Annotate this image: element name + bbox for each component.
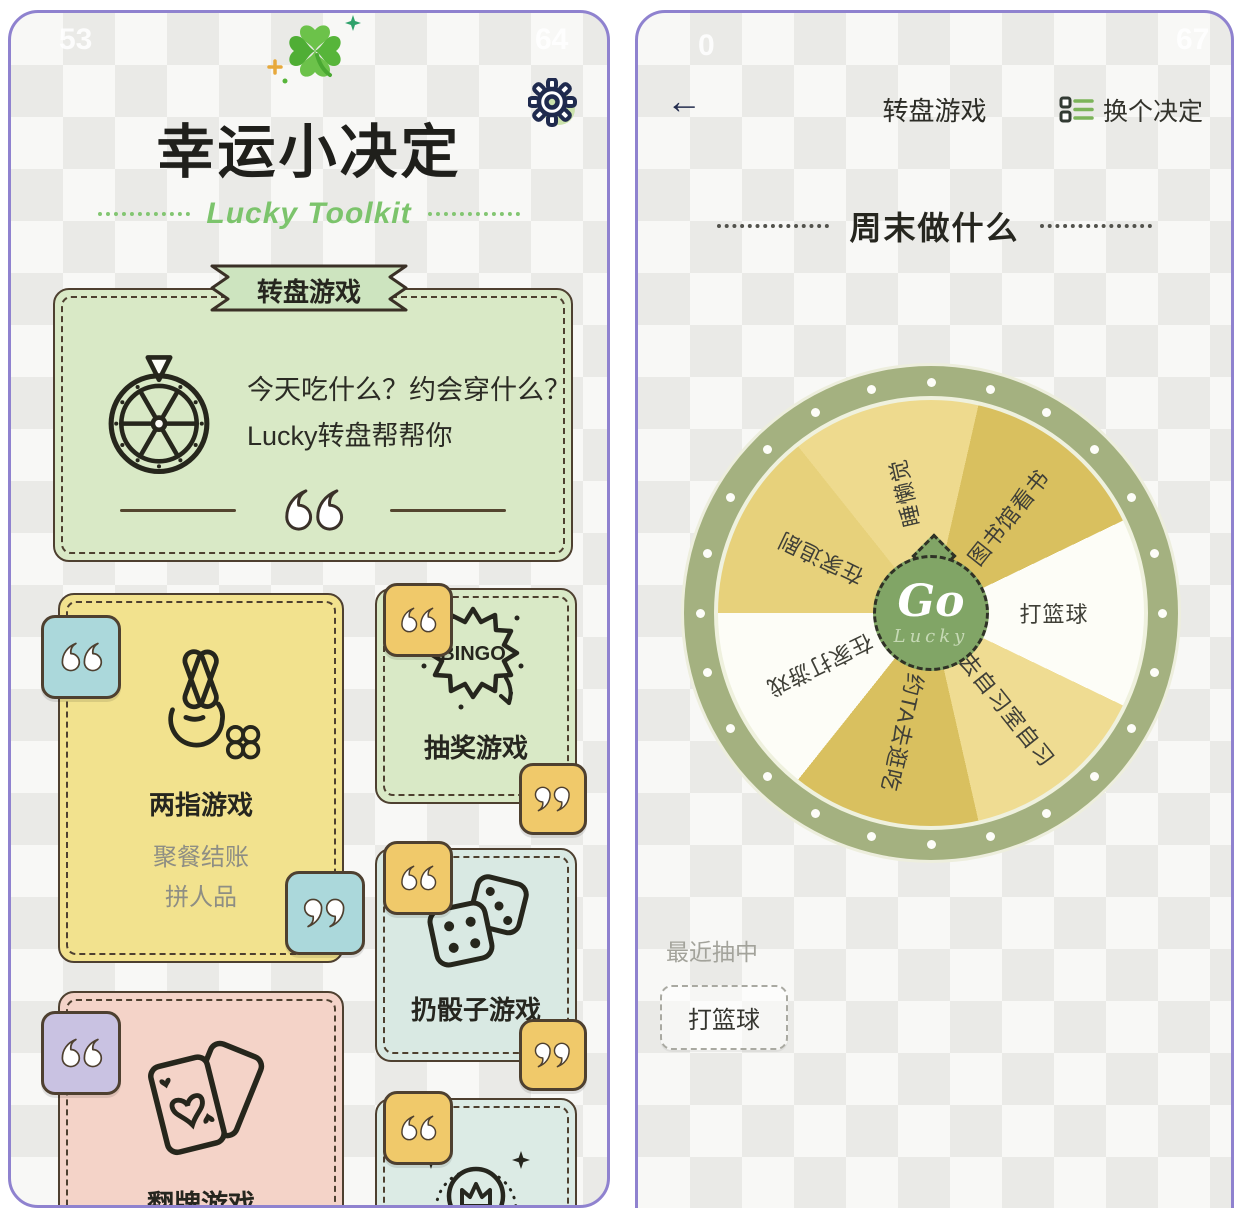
watermark-text: 53 — [59, 23, 92, 57]
quote-tag-open — [383, 1091, 453, 1165]
quote-decoration-row — [55, 488, 571, 532]
banner-label: 转盘游戏 — [184, 272, 434, 309]
change-decision-button[interactable]: 换个决定 — [1053, 91, 1209, 129]
playing-cards-icon — [130, 1033, 270, 1163]
decorative-dotted-line — [717, 224, 829, 228]
clover-icon — [261, 11, 365, 93]
list-icon — [1059, 95, 1095, 125]
app-subtitle: Lucky Toolkit — [206, 197, 411, 231]
go-button-label: Go — [898, 580, 965, 624]
crossed-fingers-icon — [142, 643, 266, 767]
decorative-dotted-line — [1040, 224, 1152, 228]
wheel-game-card[interactable]: 今天吃什么？约会穿什么？ Lucky转盘帮帮你 — [53, 288, 573, 562]
finger-card-desc-1: 聚餐结账 — [60, 837, 342, 872]
decorative-line — [120, 509, 236, 512]
watermark-text: 64 — [535, 23, 568, 57]
wheel-card-text-1: 今天吃什么？约会穿什么？ — [247, 368, 571, 407]
home-screen: 53 64 — [8, 10, 610, 1208]
quote-tag-open — [383, 583, 453, 657]
quote-tag-close — [519, 763, 587, 835]
quote-open-icon — [399, 1113, 437, 1143]
flip-card-title: 翻牌游戏 — [60, 1183, 342, 1208]
go-button[interactable]: Go Lucky — [873, 555, 989, 671]
bingo-card-title: 抽奖游戏 — [377, 728, 575, 765]
change-decision-label: 换个决定 — [1103, 92, 1203, 128]
recent-draw-chip[interactable]: 打篮球 — [660, 985, 788, 1050]
quote-open-icon — [282, 488, 344, 532]
wheel-game-banner: 转盘游戏 — [184, 261, 434, 315]
quote-tag-close — [285, 871, 365, 955]
quote-tag-open — [383, 841, 453, 915]
recent-draw-label: 最近抽中 — [666, 933, 758, 967]
watermark-text: 0 — [698, 29, 715, 63]
decorative-line — [390, 509, 506, 512]
app-title: 幸运小决定 — [11, 105, 607, 189]
quote-open-icon — [399, 863, 437, 893]
quote-close-icon — [534, 1040, 572, 1070]
watermark-text: 67 — [1176, 23, 1209, 57]
question-title: 周末做什么 — [849, 203, 1019, 249]
decorative-dotted-line — [98, 212, 190, 216]
lucky-wheel[interactable]: 打篮球去自习室自习约TA去逛吃在家打游戏在家追剧睡懒觉图书馆看书 Go Luck… — [684, 366, 1178, 860]
app-subtitle-row: Lucky Toolkit — [11, 197, 607, 231]
quote-close-icon — [534, 784, 572, 814]
decorative-dotted-line — [428, 212, 520, 216]
quote-open-icon — [59, 640, 103, 674]
quote-close-icon — [303, 896, 347, 930]
wheel-card-text-2: Lucky转盘帮帮你 — [247, 414, 453, 453]
go-button-sublabel: Lucky — [894, 626, 969, 647]
quote-open-icon — [59, 1036, 103, 1070]
wheel-screen: 0 67 ← 转盘游戏 换个决定 周末做什么 打篮球去自习室自习约TA去逛吃在家… — [635, 10, 1234, 1208]
quote-tag-open — [41, 1011, 121, 1095]
wheel-line-icon — [103, 352, 215, 480]
screenshot: 53 64 — [0, 0, 1234, 1208]
quote-open-icon — [399, 605, 437, 635]
finger-card-title: 两指游戏 — [60, 785, 342, 822]
question-row: 周末做什么 — [638, 203, 1231, 249]
quote-tag-open — [41, 615, 121, 699]
quote-tag-close — [519, 1019, 587, 1091]
